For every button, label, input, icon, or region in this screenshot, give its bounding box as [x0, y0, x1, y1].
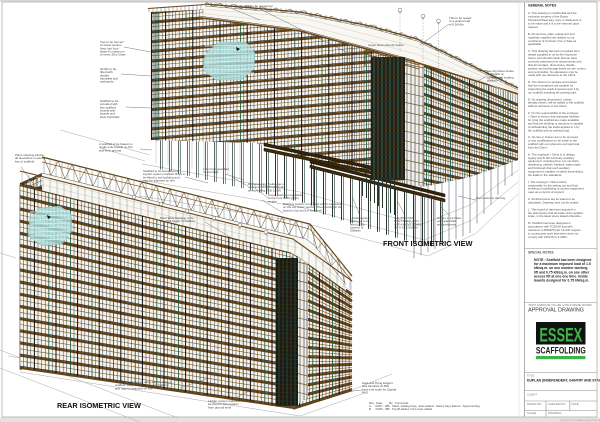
svg-text:APPROVAL DRAWING: APPROVAL DRAWING	[528, 308, 584, 314]
svg-text:TENTH CAMBOUSE VOLUME LAYMAN W: TENTH CAMBOUSE VOLUME LAYMAN WHERE SHARE…	[528, 304, 592, 307]
svg-text:DRAWN BY: DRAWN BY	[527, 402, 542, 406]
svg-text:Designs using Kwikstage or tub: Designs using Kwikstage or tube and fitt…	[248, 182, 286, 192]
svg-text:GENERAL NOTES: GENERAL NOTES	[528, 4, 557, 8]
svg-text:Upper beam directly below: Upper beam directly below	[368, 43, 404, 47]
svg-text:CHECKED BY: CHECKED BY	[548, 402, 566, 406]
svg-text:CLIENT: CLIENT	[527, 393, 537, 397]
svg-text:SPECIAL NOTES: SPECIAL NOTES	[528, 251, 554, 255]
svg-text:REAR ISOMETRIC VIEW: REAR ISOMETRIC VIEW	[57, 401, 141, 410]
svg-text:DUPLAN (INDEPENDENT, GANTRY AN: DUPLAN (INDEPENDENT, GANTRY AND STAIRCAS…	[527, 379, 600, 383]
svg-text:ESSEX: ESSEX	[539, 324, 582, 346]
svg-text:DRAWING: DRAWING	[548, 411, 561, 415]
svg-text:existing head to be supported: existing head to be supported	[233, 4, 273, 8]
svg-text:NOTE : Scaffold has been desig: NOTE : Scaffold has been designed for a …	[534, 258, 592, 283]
svg-text:Plant Wide Decking to be fitte: Plant Wide Decking to be fitted full hei…	[160, 216, 195, 223]
svg-text:SCAFFOLDING: SCAFFOLDING	[536, 346, 586, 356]
svg-text:FRONT ISOMETRIC VIEW: FRONT ISOMETRIC VIEW	[383, 239, 473, 248]
svg-text:DATE: DATE	[572, 402, 579, 406]
svg-text:PRODUCED BY AN AUTODESK EDUCAT: PRODUCED BY AN AUTODESK EDUCATIONAL PROD…	[560, 419, 600, 422]
svg-text:SCALE: SCALE	[527, 411, 536, 415]
svg-text:Point lower to this bay: Point lower to this bay	[476, 196, 506, 200]
svg-text:TITLE: TITLE	[527, 374, 534, 378]
